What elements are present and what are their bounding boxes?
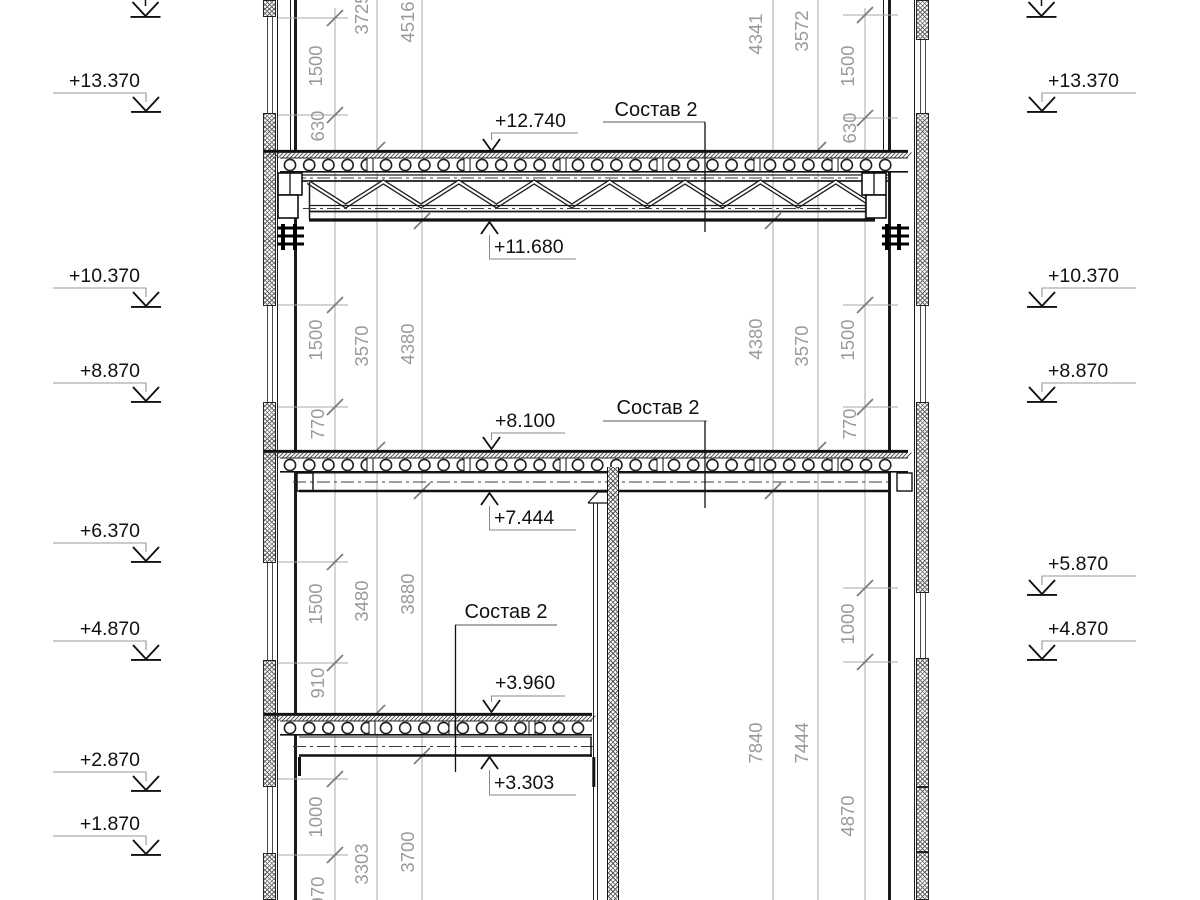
architectural-section-drawing: +12.740+11.680+8.100+7.444+3.960+3.303+1… [0, 0, 1200, 900]
elevation-marker-text: +5.870 [1048, 553, 1148, 576]
corbel [588, 492, 598, 503]
slab-void-circle [572, 459, 583, 470]
slab-void-circle [419, 722, 430, 733]
slab-void-circle [707, 159, 718, 170]
slab-void-circle [668, 459, 679, 470]
dimension-text: 1500 [304, 559, 328, 649]
callout-arrow-icon [483, 139, 500, 151]
slab-void-circle [419, 459, 430, 470]
dimension-text: 3480 [350, 556, 374, 646]
callout-arrow-icon [481, 757, 498, 769]
truss-bearing [278, 195, 298, 218]
slab-void-circle [784, 159, 795, 170]
slab-void-circle [515, 722, 526, 733]
dimension-text: 4516 [396, 0, 420, 67]
dimension-text: 770 [838, 379, 862, 469]
dimension-text: 3725 [350, 0, 374, 59]
slab-joint [369, 722, 375, 735]
slab-void-circle [880, 459, 891, 470]
slab-joint [657, 159, 663, 172]
dimension-text: 4380 [396, 299, 420, 389]
slab-void-circle [515, 159, 526, 170]
dimension-text: 910 [306, 638, 330, 728]
dimension-text: 1500 [304, 295, 328, 385]
slab-void-circle [534, 722, 545, 733]
slab-void-circle [284, 722, 295, 733]
dimension-text: 3880 [396, 549, 420, 639]
slab-void-circle [630, 159, 641, 170]
slab-joint [464, 459, 470, 472]
slab-void-circle [419, 159, 430, 170]
slab-void-circle [438, 159, 449, 170]
dimension-text: 3303 [350, 819, 374, 900]
slab-joint [449, 722, 455, 735]
dimension-text: 1000 [836, 579, 860, 669]
elevation-marker-text: +13.370 [40, 70, 140, 93]
slab-void-circle [803, 459, 814, 470]
slab-void-circle [803, 159, 814, 170]
slab-void-circle [726, 459, 737, 470]
slab-void-circle [496, 159, 507, 170]
dimension-text: 770 [306, 379, 330, 469]
dimension-text: 4380 [744, 294, 768, 384]
slab-void-circle [553, 722, 564, 733]
slab-void-circle [342, 159, 353, 170]
level-callout-text: +11.680 [494, 236, 564, 259]
slab-void-circle [342, 459, 353, 470]
dimension-text: 3572 [790, 0, 814, 76]
level-callout-text: +7.444 [494, 507, 554, 530]
slab-void-circle [515, 459, 526, 470]
slab-void-circle [688, 159, 699, 170]
elevation-marker-text: +8.870 [40, 360, 140, 383]
slab-void-circle [784, 459, 795, 470]
structure-linework [0, 0, 1200, 900]
slab-void-circle [860, 459, 871, 470]
elevation-marker-text: +2.870 [40, 749, 140, 772]
slab-joint [367, 159, 373, 172]
elevation-marker-text: +10.370 [40, 265, 140, 288]
slab-void-circle [592, 159, 603, 170]
slab-joint [560, 159, 566, 172]
composition-label: Состав 2 [603, 397, 713, 420]
level-callout-text: +3.303 [494, 772, 554, 795]
elevation-marker-text: +10.370 [1048, 265, 1148, 288]
slab-void-circle [688, 459, 699, 470]
slab-void-circle [400, 722, 411, 733]
dimension-text: 630 [838, 83, 862, 173]
slab-void-circle [342, 722, 353, 733]
slab-joint [754, 159, 760, 172]
slab-void-circle [764, 159, 775, 170]
slab-void-circle [476, 459, 487, 470]
slab-void-circle [572, 159, 583, 170]
level-callout-text: +8.100 [495, 410, 555, 433]
slab-void-circle [668, 159, 679, 170]
elevation-marker-text: +4.870 [40, 618, 140, 641]
dimension-text: 630 [306, 81, 330, 171]
composition-label: Состав 2 [451, 601, 561, 624]
slab-joint [560, 459, 566, 472]
dimension-text: 4870 [836, 771, 860, 861]
elevation-marker-text: +6.370 [40, 520, 140, 543]
slab-void-circle [496, 459, 507, 470]
elevation-marker-text: +1.870 [40, 813, 140, 836]
slab-void-circle [880, 159, 891, 170]
slab-void-circle [284, 459, 295, 470]
dimension-text: 970 [306, 847, 330, 900]
slab-void-circle [707, 459, 718, 470]
composition-label: Состав 2 [601, 99, 711, 122]
slab-void-circle [534, 159, 545, 170]
level-callout-text: +3.960 [495, 672, 555, 695]
callout-arrow-icon [481, 222, 498, 234]
dimension-text: 7444 [790, 698, 814, 788]
elevation-marker-text: +4.870 [1048, 618, 1148, 641]
slab-void-circle [380, 159, 391, 170]
slab-void-circle [380, 459, 391, 470]
slab-void-circle [476, 722, 487, 733]
dimension-text: 4341 [744, 0, 768, 79]
slab-void-circle [476, 159, 487, 170]
slab-void-circle [438, 459, 449, 470]
elevation-marker-text: +13.370 [1048, 70, 1148, 93]
slab-void-circle [764, 459, 775, 470]
dimension-text: 3700 [396, 807, 420, 897]
slab-joint [464, 159, 470, 172]
slab-void-circle [592, 459, 603, 470]
slab-void-circle [630, 459, 641, 470]
slab-joint [754, 459, 760, 472]
slab-void-circle [438, 722, 449, 733]
slab-joint [657, 459, 663, 472]
callout-arrow-icon [481, 493, 498, 505]
elevation-marker-text: +8.870 [1048, 360, 1148, 383]
interior-column [607, 467, 619, 900]
slab-void-circle [400, 459, 411, 470]
slab-void-circle [400, 159, 411, 170]
dimension-text: 3570 [790, 301, 814, 391]
slab-void-circle [611, 159, 622, 170]
level-callout-text: +12.740 [495, 110, 566, 133]
slab-void-circle [860, 159, 871, 170]
beam-bearing [897, 473, 912, 491]
dimension-text: 1500 [836, 295, 860, 385]
slab-joint [367, 459, 373, 472]
slab-void-circle [726, 159, 737, 170]
dimension-text: 7840 [744, 698, 768, 788]
slab-void-circle [284, 159, 295, 170]
slab-joint [529, 722, 535, 735]
slab-void-circle [380, 722, 391, 733]
truss-bearing [866, 195, 886, 218]
slab-void-circle [572, 722, 583, 733]
dimension-text: 3570 [350, 301, 374, 391]
slab-void-circle [457, 722, 468, 733]
slab-void-circle [534, 459, 545, 470]
slab-void-circle [496, 722, 507, 733]
